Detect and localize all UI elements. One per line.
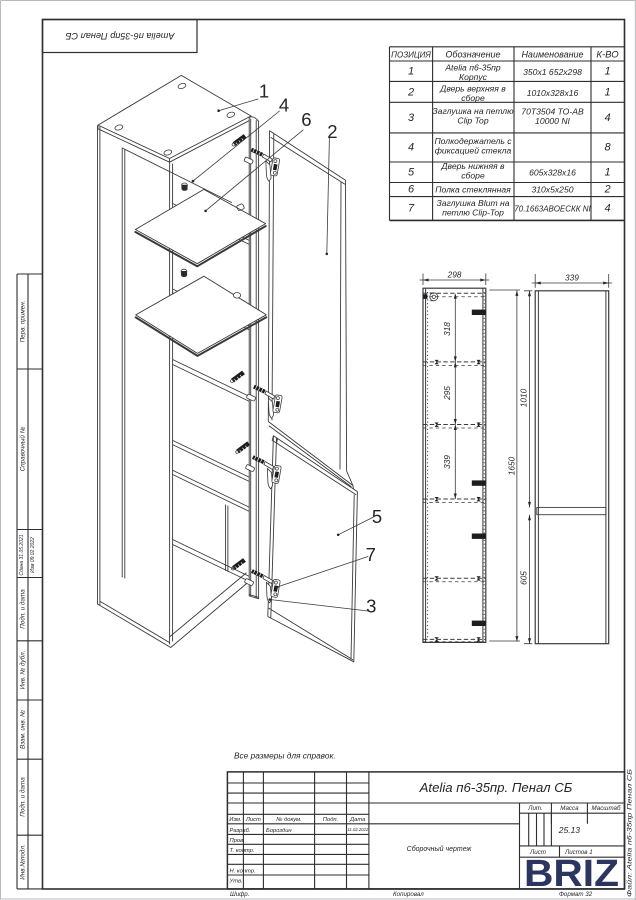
- svg-text:Полка стеклянная: Полка стеклянная: [435, 185, 511, 195]
- svg-text:Т. контр.: Т. контр.: [230, 848, 255, 854]
- svg-text:Сдана 31.05.2021: Сдана 31.05.2021: [19, 534, 25, 575]
- svg-text:Наименование: Наименование: [521, 50, 583, 60]
- svg-text:Подп. и дата: Подп. и дата: [19, 589, 27, 629]
- svg-text:Копировал: Копировал: [393, 891, 424, 898]
- svg-text:295: 295: [442, 386, 452, 401]
- svg-text:1010x328x16: 1010x328x16: [527, 88, 579, 98]
- svg-text:298: 298: [447, 270, 462, 280]
- svg-text:2: 2: [407, 87, 414, 99]
- svg-text:Заглушка Blum на: Заглушка Blum на: [436, 198, 509, 208]
- svg-text:Справочный №: Справочный №: [19, 426, 27, 471]
- svg-text:Amelia п6-35пр Пенал СБ: Amelia п6-35пр Пенал СБ: [65, 31, 175, 41]
- svg-text:7: 7: [408, 203, 415, 215]
- svg-text:70Т3504 ТО-АВ: 70Т3504 ТО-АВ: [521, 107, 584, 117]
- svg-text:Сборочный чертеж: Сборочный чертеж: [407, 845, 473, 853]
- svg-text:Масштаб: Масштаб: [592, 805, 621, 812]
- svg-text:11.02.2022: 11.02.2022: [348, 827, 369, 832]
- svg-text:Утв.: Утв.: [229, 879, 243, 885]
- svg-text:Atelia п6-35пр: Atelia п6-35пр: [444, 63, 501, 73]
- svg-text:2: 2: [603, 184, 610, 196]
- svg-text:1: 1: [604, 87, 610, 99]
- svg-text:339: 339: [565, 272, 579, 282]
- svg-text:Лист: Лист: [245, 817, 261, 823]
- svg-text:5: 5: [372, 506, 382, 527]
- svg-text:1650: 1650: [506, 456, 516, 475]
- svg-text:Atelia п6-35пр. Пенал СБ: Atelia п6-35пр. Пенал СБ: [419, 780, 573, 795]
- svg-text:2: 2: [327, 121, 337, 142]
- svg-text:Полкодержатель с: Полкодержатель с: [434, 136, 512, 146]
- svg-text:339: 339: [442, 455, 452, 469]
- svg-text:Дата: Дата: [349, 817, 366, 823]
- svg-text:350x1 652x298: 350x1 652x298: [523, 67, 582, 77]
- svg-text:Подп. и дата: Подп. и дата: [19, 777, 27, 817]
- svg-text:8: 8: [604, 142, 611, 154]
- svg-text:BRIZ: BRIZ: [524, 853, 619, 895]
- svg-text:Пров.: Пров.: [230, 838, 245, 844]
- svg-text:ПОЗИЦИЯ: ПОЗИЦИЯ: [391, 50, 431, 59]
- svg-text:7: 7: [366, 544, 376, 565]
- svg-text:Все размеры для справок.: Все размеры для справок.: [234, 751, 336, 761]
- svg-text:5: 5: [408, 167, 415, 179]
- svg-text:сборе: сборе: [461, 171, 485, 181]
- svg-text:Масса: Масса: [560, 805, 579, 812]
- svg-text:фиксацией стекла: фиксацией стекла: [435, 146, 512, 156]
- svg-text:Н. контр.: Н. контр.: [230, 868, 256, 874]
- svg-text:4: 4: [408, 142, 414, 154]
- svg-text:К-ВО: К-ВО: [596, 50, 619, 61]
- svg-text:Обозначение: Обозначение: [445, 50, 500, 60]
- svg-text:1: 1: [604, 167, 610, 179]
- svg-text:Разраб.: Разраб.: [230, 828, 251, 834]
- svg-text:Изм.: Изм.: [229, 817, 241, 823]
- svg-text:№ докум.: № докум.: [276, 817, 302, 823]
- svg-text:6: 6: [301, 109, 311, 130]
- svg-text:Взам. инв. №: Взам. инв. №: [20, 710, 27, 749]
- svg-text:3: 3: [366, 596, 376, 617]
- svg-text:310x5x250: 310x5x250: [531, 185, 573, 195]
- svg-text:Файл: Atelia п6-35пр Пенал С: Файл: Atelia п6-35пр Пенал СБ: [627, 769, 634, 897]
- svg-text:605x328x16: 605x328x16: [529, 168, 576, 178]
- svg-text:Бороздин: Бороздин: [266, 828, 292, 834]
- svg-text:3: 3: [408, 112, 415, 124]
- svg-text:Clip Top: Clip Top: [457, 116, 488, 126]
- svg-text:1: 1: [259, 81, 269, 102]
- svg-text:Дверь верхняя в: Дверь верхняя в: [439, 84, 506, 94]
- svg-text:Изм 09.02.2022: Изм 09.02.2022: [30, 537, 36, 573]
- svg-text:Перв. примен.: Перв. примен.: [20, 301, 27, 343]
- svg-text:Инв. № дубл.: Инв. № дубл.: [19, 651, 27, 690]
- svg-text:25.13: 25.13: [558, 825, 581, 835]
- svg-text:10000 NI: 10000 NI: [535, 116, 570, 126]
- svg-text:Лит.: Лит.: [527, 805, 543, 812]
- svg-text:1: 1: [408, 66, 414, 78]
- svg-text:петлю Clip-Top: петлю Clip-Top: [442, 208, 504, 218]
- svg-text:4: 4: [604, 203, 610, 215]
- svg-text:1: 1: [604, 66, 610, 78]
- svg-text:Инв.№подл.: Инв.№подл.: [19, 844, 27, 880]
- svg-text:4: 4: [279, 95, 289, 116]
- svg-text:1010: 1010: [519, 388, 529, 407]
- svg-text:6: 6: [408, 184, 415, 196]
- svg-text:4: 4: [604, 112, 610, 124]
- svg-text:Шифр.: Шифр.: [230, 891, 249, 898]
- svg-text:Корпус: Корпус: [459, 72, 488, 82]
- svg-text:318: 318: [442, 322, 452, 336]
- svg-text:70.1663АВОЕСКК NI: 70.1663АВОЕСКК NI: [514, 205, 591, 214]
- svg-text:Заглушка на петлю: Заглушка на петлю: [432, 106, 514, 116]
- svg-text:сборе: сборе: [461, 93, 485, 103]
- svg-text:605: 605: [519, 571, 529, 585]
- svg-text:Подп.: Подп.: [323, 817, 338, 823]
- svg-text:Дверь нижняя в: Дверь нижняя в: [440, 161, 505, 171]
